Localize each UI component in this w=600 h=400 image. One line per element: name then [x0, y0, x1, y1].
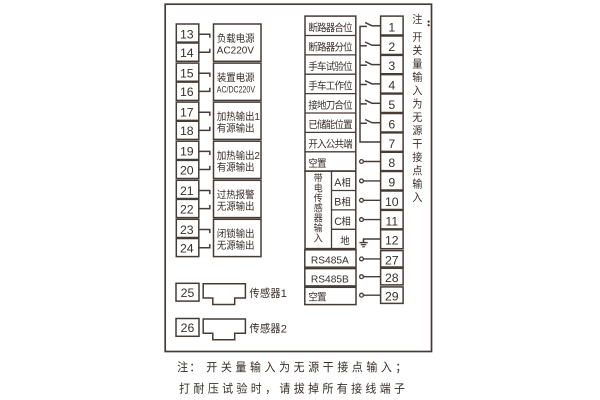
svg-text:12: 12: [385, 234, 399, 248]
svg-text:26: 26: [181, 321, 195, 335]
svg-text:15: 15: [180, 67, 194, 81]
svg-text:25: 25: [181, 286, 195, 300]
svg-text:2: 2: [388, 40, 395, 54]
svg-text:22: 22: [180, 202, 194, 216]
svg-text:C: C: [334, 216, 342, 228]
svg-text:24: 24: [180, 241, 194, 255]
svg-text:RS485B: RS485B: [311, 274, 349, 285]
svg-text:19: 19: [180, 145, 194, 159]
svg-text:2: 2: [254, 151, 260, 162]
svg-text:28: 28: [385, 271, 399, 285]
svg-text:18: 18: [180, 124, 194, 138]
svg-text:4: 4: [388, 79, 395, 93]
svg-text:10: 10: [385, 195, 399, 209]
svg-text:20: 20: [180, 163, 194, 177]
svg-text:2: 2: [281, 323, 287, 335]
svg-text:17: 17: [180, 106, 194, 120]
svg-text:1: 1: [254, 112, 260, 123]
svg-text:29: 29: [385, 290, 399, 304]
svg-text:9: 9: [388, 176, 395, 190]
svg-text:1: 1: [388, 21, 395, 35]
svg-text:7: 7: [388, 137, 395, 151]
svg-text:5: 5: [388, 98, 395, 112]
svg-text:AC220V: AC220V: [217, 46, 255, 57]
svg-text:1: 1: [281, 288, 287, 300]
svg-text:B: B: [334, 197, 341, 209]
svg-text:13: 13: [180, 28, 194, 42]
svg-text:16: 16: [180, 85, 194, 99]
svg-text:11: 11: [385, 214, 398, 228]
svg-text:6: 6: [388, 117, 395, 131]
svg-text:8: 8: [388, 156, 395, 170]
svg-text:RS485A: RS485A: [311, 256, 349, 267]
svg-text:3: 3: [388, 59, 395, 73]
svg-text:14: 14: [180, 46, 194, 60]
svg-text:27: 27: [385, 253, 399, 267]
svg-text:A: A: [334, 177, 342, 189]
svg-text:21: 21: [180, 184, 194, 198]
svg-text:AC/DC220V: AC/DC220V: [217, 85, 256, 95]
svg-text:23: 23: [180, 223, 194, 237]
